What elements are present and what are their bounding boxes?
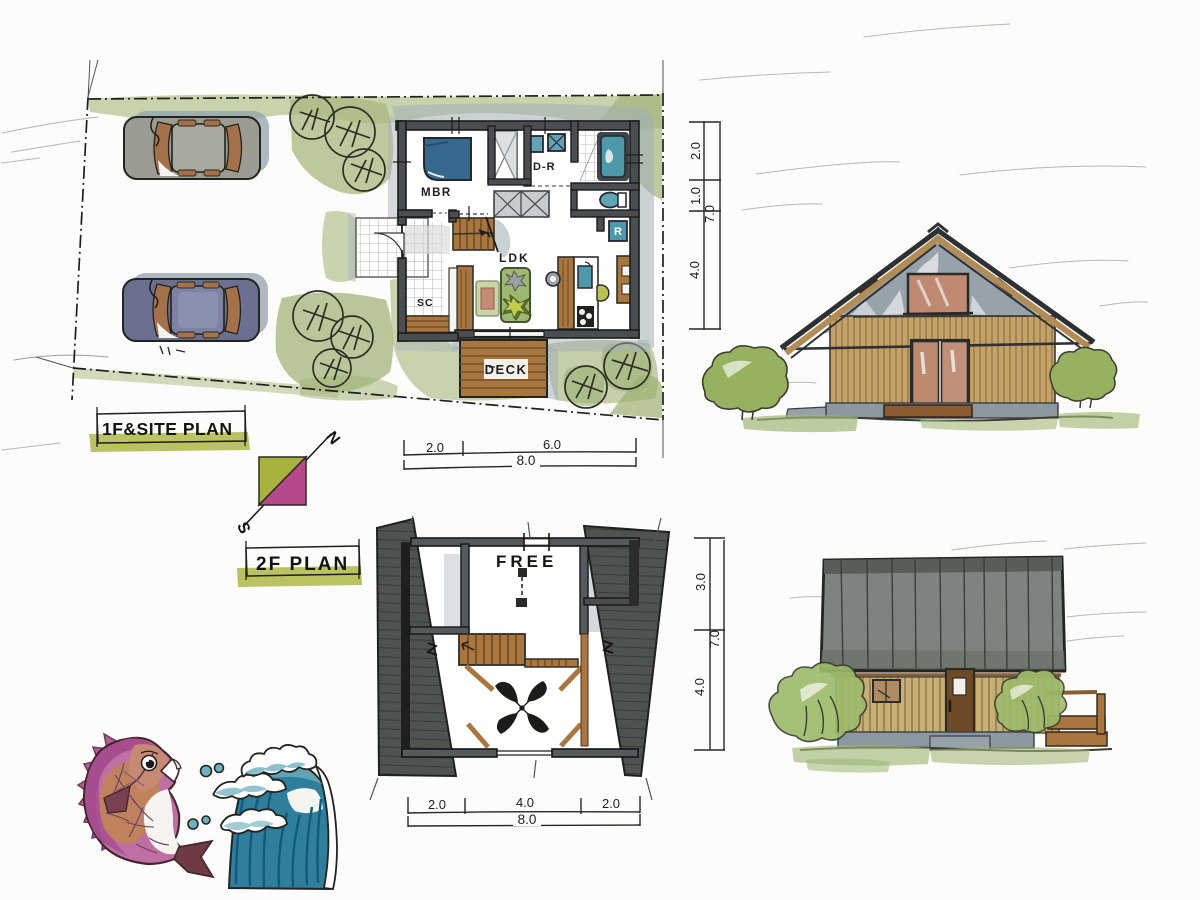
svg-text:3.0: 3.0 [693,573,708,591]
svg-text:1F&SITE PLAN: 1F&SITE PLAN [102,419,232,439]
svg-text:SC: SC [417,297,434,309]
svg-text:2.0: 2.0 [428,797,446,812]
svg-text:2.0: 2.0 [688,142,703,160]
svg-text:1.0: 1.0 [688,187,703,205]
svg-text:7.0: 7.0 [702,205,717,223]
svg-text:D-R: D-R [533,161,556,173]
svg-text:7.0: 7.0 [707,630,722,648]
svg-text:4.0: 4.0 [692,678,707,696]
svg-text:LDK: LDK [499,251,530,265]
svg-text:2.0: 2.0 [602,796,620,811]
svg-text:4.0: 4.0 [516,795,534,810]
svg-text:FREE: FREE [496,552,557,571]
svg-text:R: R [614,226,622,238]
svg-text:8.0: 8.0 [518,812,537,827]
svg-text:2.0: 2.0 [426,440,444,455]
svg-text:6.0: 6.0 [543,437,561,452]
svg-text:4.0: 4.0 [687,261,702,279]
svg-text:2F PLAN: 2F PLAN [256,554,349,575]
svg-text:MBR: MBR [421,187,452,199]
svg-text:DECK: DECK [485,362,528,377]
svg-text:8.0: 8.0 [517,453,536,468]
